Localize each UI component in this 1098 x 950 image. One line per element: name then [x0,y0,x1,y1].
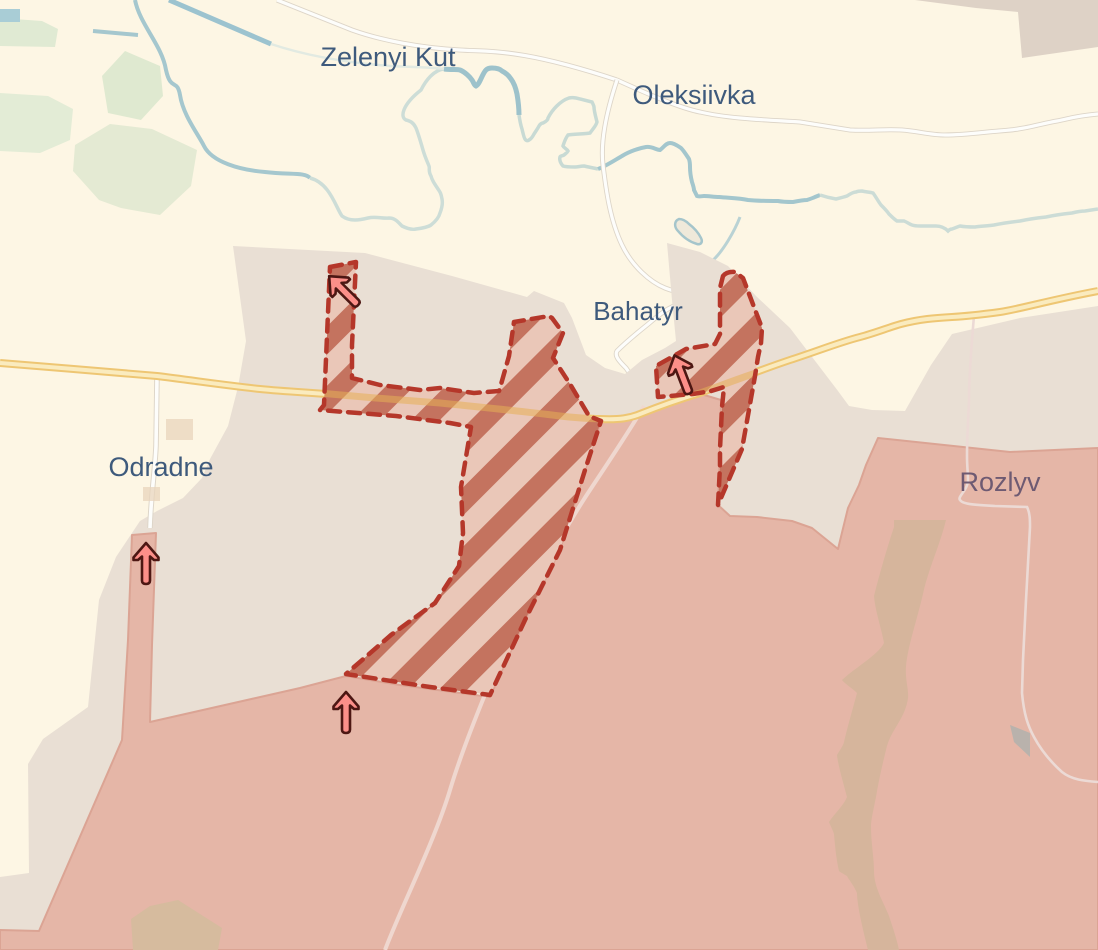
svg-text:Bahatyr: Bahatyr [593,296,683,326]
svg-text:Oleksiivka: Oleksiivka [632,80,756,110]
svg-text:Rozlyv: Rozlyv [959,467,1041,497]
svg-text:Zelenyi Kut: Zelenyi Kut [320,42,456,72]
svg-text:Odradne: Odradne [108,452,213,482]
